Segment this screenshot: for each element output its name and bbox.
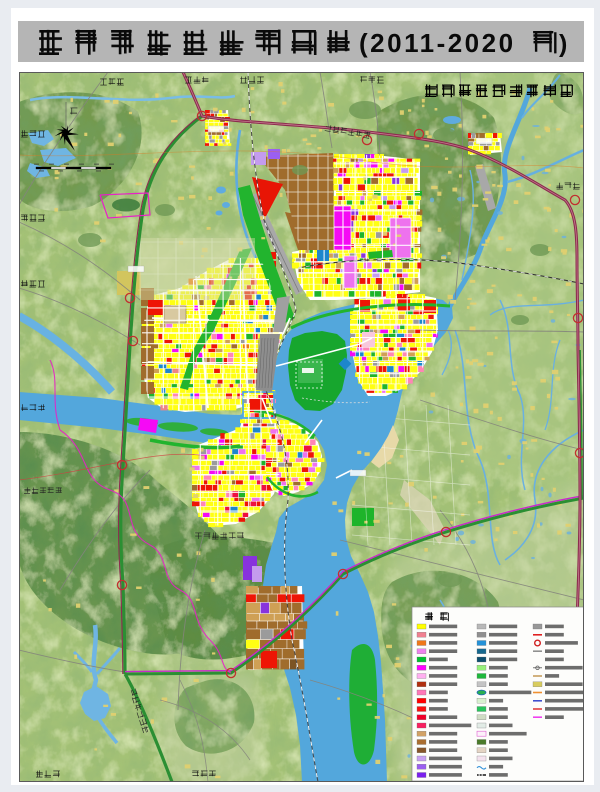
svg-text:): ) <box>559 30 567 58</box>
svg-text:(2011-2020: (2011-2020 <box>359 28 516 58</box>
